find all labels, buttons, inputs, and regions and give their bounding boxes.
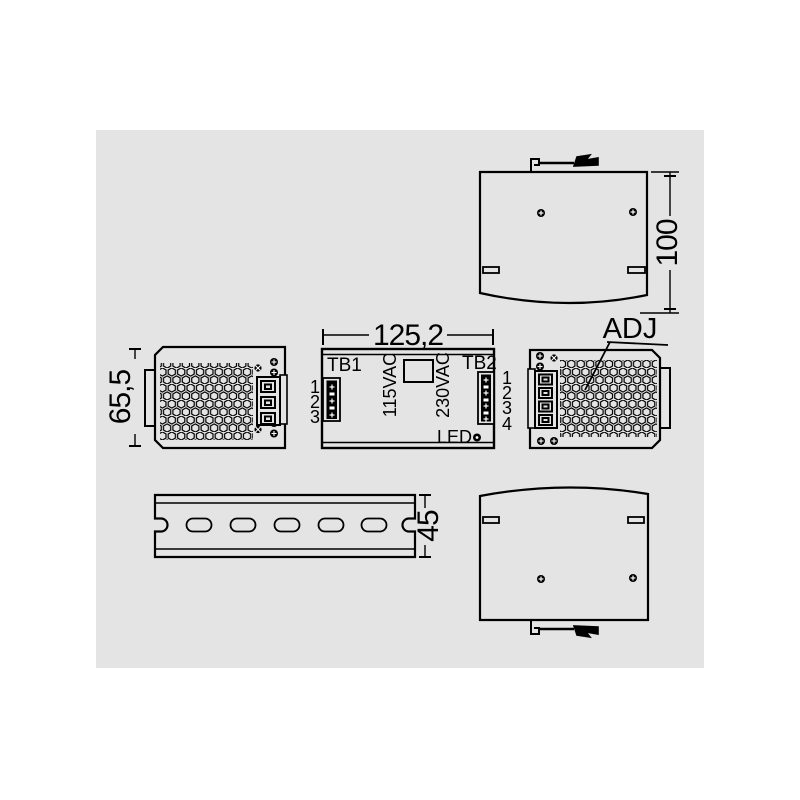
tb2-terminal-strip: [478, 372, 494, 424]
din-bracket-tab: [145, 370, 155, 426]
bottom-view-body: [480, 487, 648, 620]
bottom-view: [480, 487, 648, 637]
din-rail-view: 45: [155, 495, 445, 557]
screw-icon: [537, 575, 545, 583]
tb1-label: TB1: [327, 355, 362, 376]
vent-grid: [560, 360, 657, 437]
voltage-selector-switch: [404, 360, 433, 382]
vent-grid: [160, 363, 253, 440]
v115-label: 115VAC: [380, 353, 400, 417]
led-indicator-icon: [473, 434, 481, 442]
screw-icon: [629, 574, 637, 582]
dim-rail-label: 45: [412, 510, 445, 542]
dim-depth-label: 100: [651, 219, 684, 266]
dim-height-label: 65,5: [104, 369, 137, 424]
rail-body: [155, 495, 415, 557]
dim-width-label: 125,2: [373, 319, 443, 352]
tb1-pin-3: 3: [310, 407, 320, 427]
tb2-label: TB2: [462, 353, 497, 374]
din-bracket-tab: [660, 368, 670, 428]
terminal-block-3p: [257, 375, 287, 425]
v230-label: 230VAC: [433, 352, 453, 418]
led-label: LED: [437, 427, 472, 447]
adj-label: ADJ: [603, 313, 658, 345]
terminal-block-4p: [528, 369, 557, 428]
screw-icon: [629, 208, 637, 216]
top-view-body: [480, 172, 647, 303]
tb1-terminal-strip: [323, 378, 340, 421]
screw-icon: [537, 209, 545, 217]
tb2-pin-4: 4: [502, 414, 512, 434]
dimension-drawing: 100 125,2 TB1 TB2 1 2: [0, 0, 800, 800]
